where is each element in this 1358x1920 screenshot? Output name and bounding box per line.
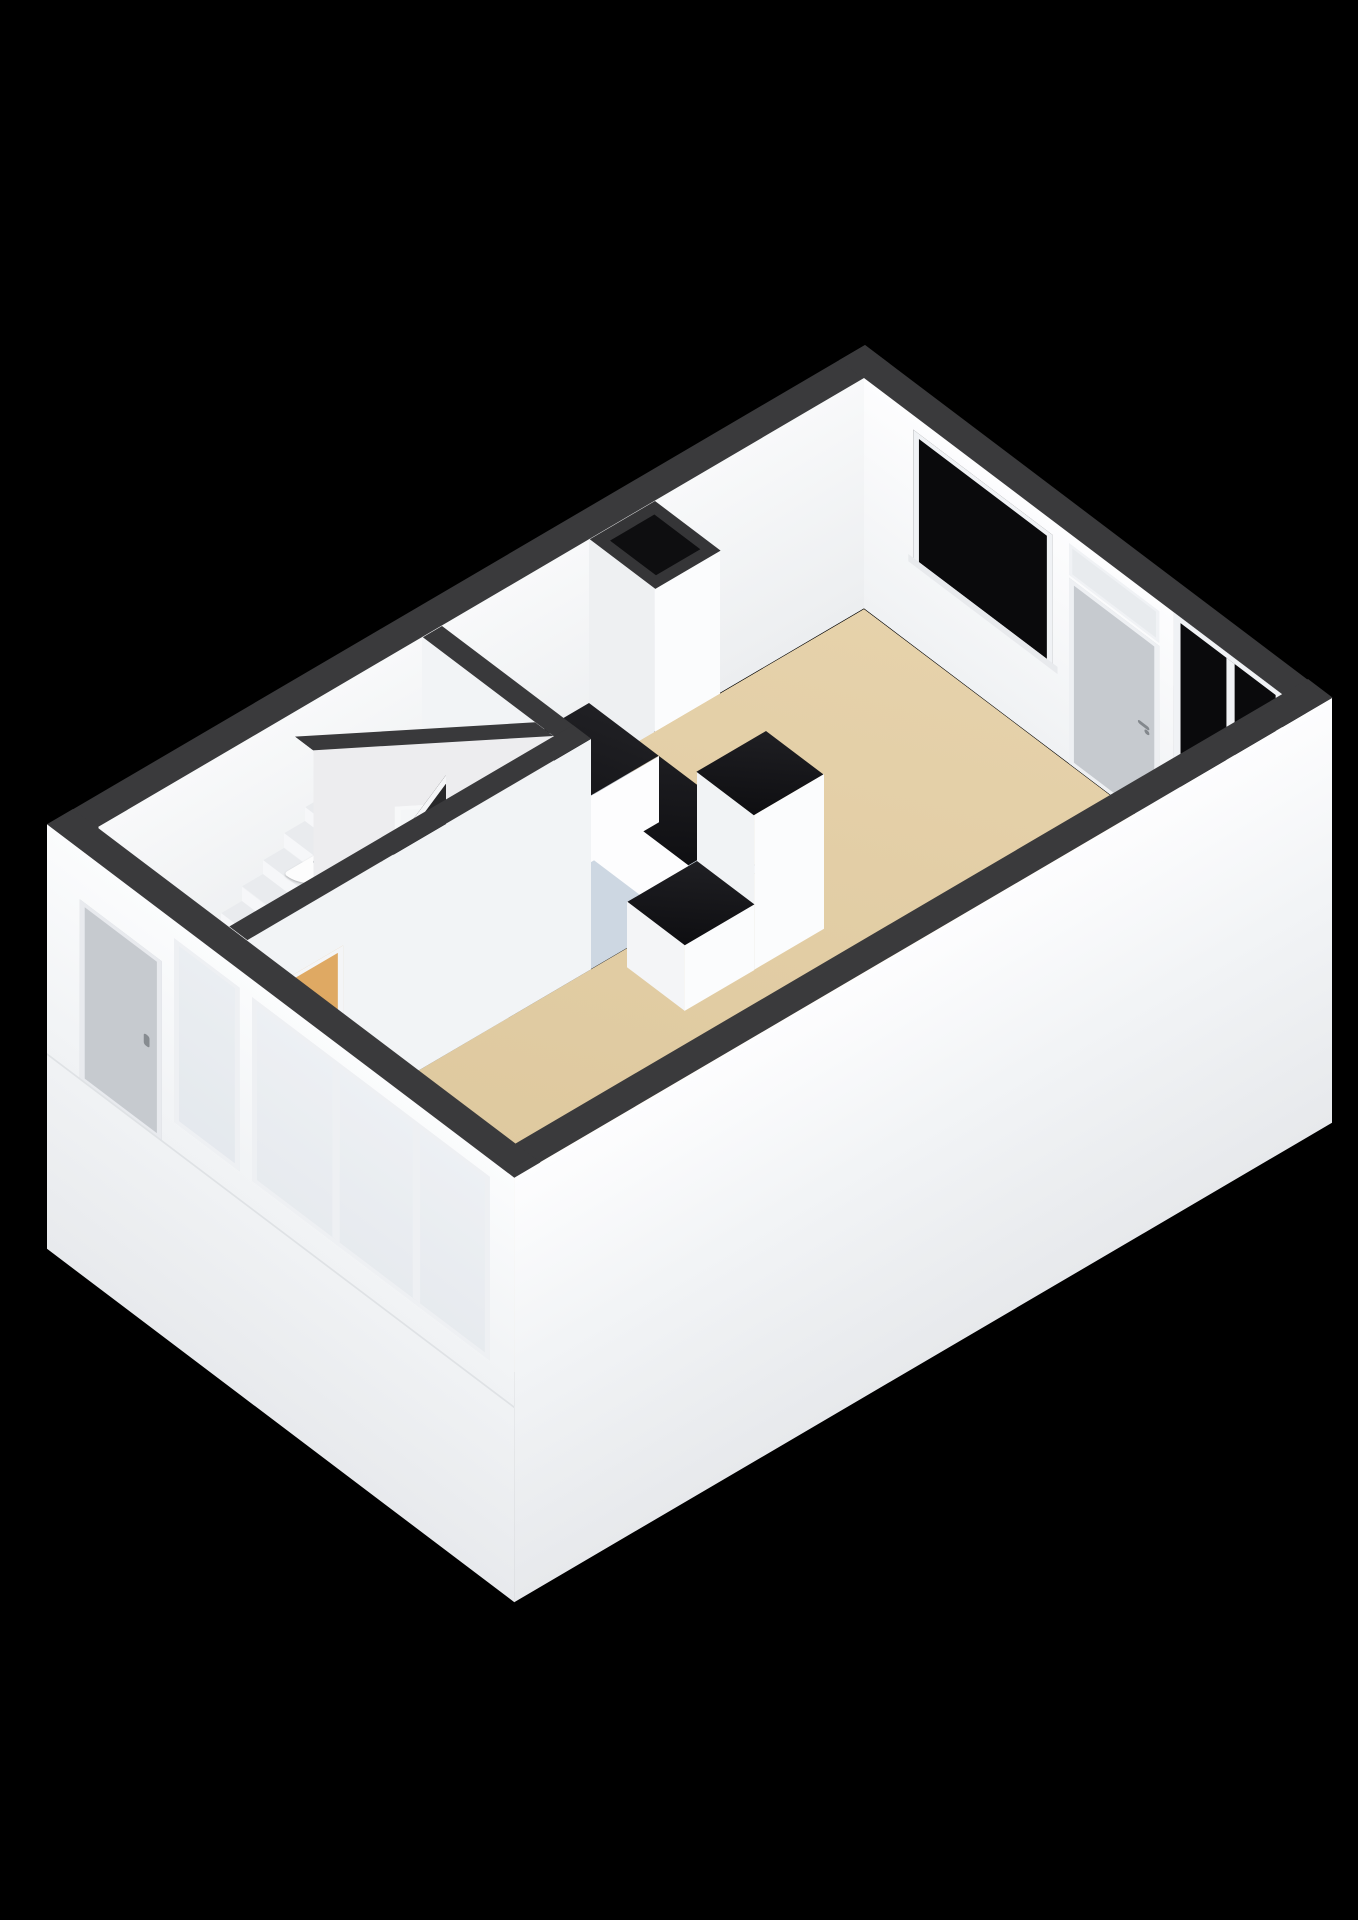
facade-window-mullion: [332, 1062, 339, 1243]
front-door: [80, 899, 162, 1141]
front-door-handle-icon: [144, 1033, 150, 1049]
facade-window-a: [174, 938, 240, 1171]
floorplan-3d-scene: 3D isometric cutaway floor plan - ground…: [0, 0, 1358, 1920]
facade-window-mullion: [413, 1123, 420, 1304]
